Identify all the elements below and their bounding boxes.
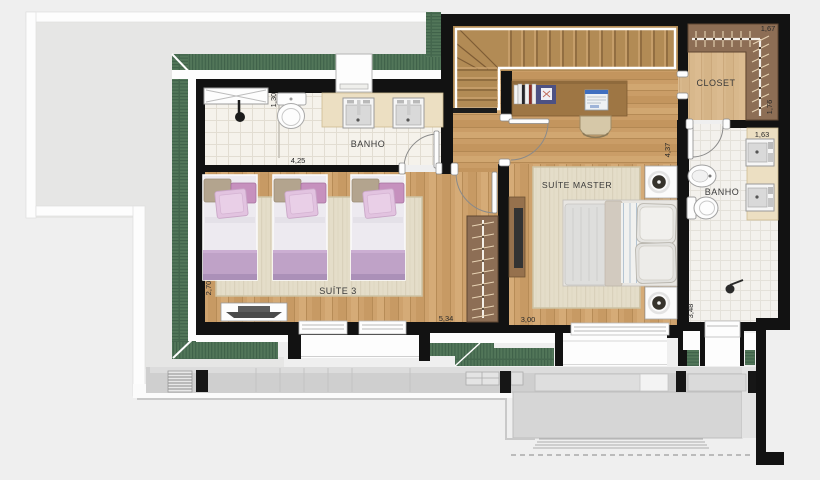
svg-text:SUÍTE MASTER: SUÍTE MASTER <box>542 180 612 190</box>
svg-text:1,30: 1,30 <box>269 93 278 108</box>
svg-text:4,25: 4,25 <box>291 156 306 165</box>
svg-text:1,67: 1,67 <box>761 24 776 33</box>
svg-text:4,37: 4,37 <box>663 143 672 158</box>
svg-text:1,63: 1,63 <box>755 130 770 139</box>
svg-text:BANHO: BANHO <box>705 187 740 197</box>
svg-text:3,48: 3,48 <box>686 304 695 319</box>
svg-text:SUÍTE 3: SUÍTE 3 <box>319 286 357 296</box>
svg-text:BANHO: BANHO <box>351 139 386 149</box>
svg-text:5,34: 5,34 <box>439 314 454 323</box>
svg-text:2,70: 2,70 <box>204 281 213 296</box>
svg-text:CLOSET: CLOSET <box>696 78 735 88</box>
svg-text:1,76: 1,76 <box>765 100 774 115</box>
svg-text:3,00: 3,00 <box>521 315 536 324</box>
